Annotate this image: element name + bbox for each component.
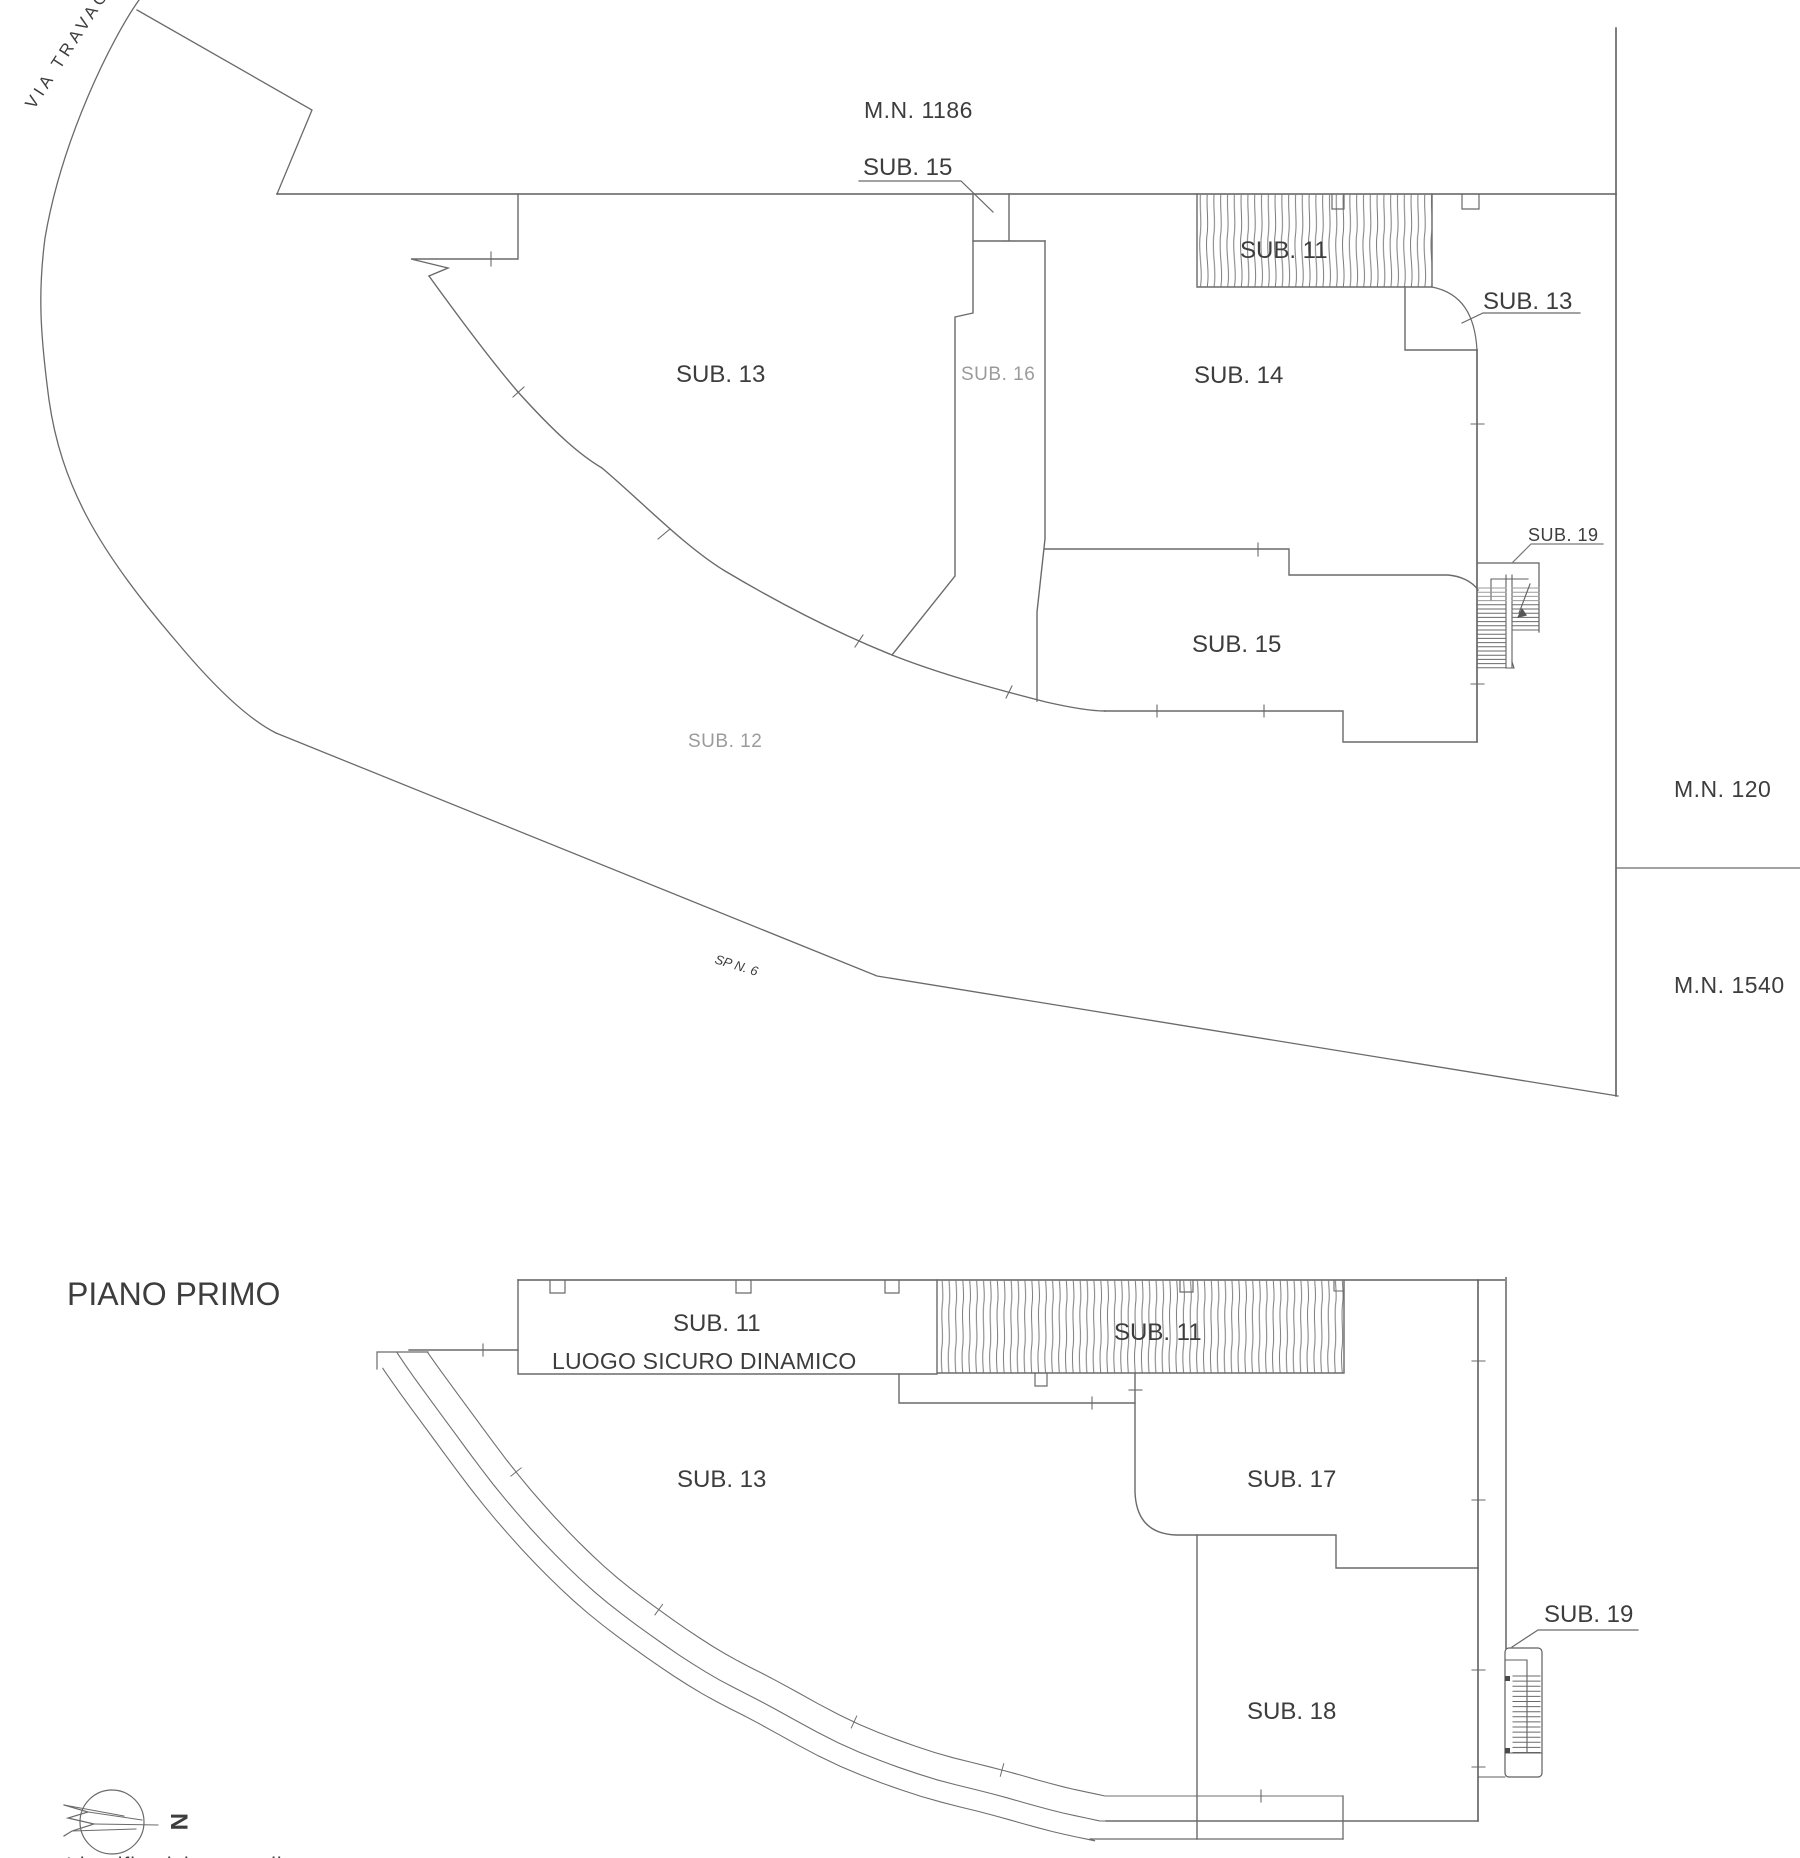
svg-text:SUB. 12: SUB. 12	[688, 731, 762, 752]
svg-text:SP N. 6: SP N. 6	[713, 952, 760, 980]
svg-text:M.N. 1186: M.N. 1186	[864, 97, 973, 123]
svg-text:Identificativi catastali: Identificativi catastali	[66, 1854, 283, 1858]
svg-text:SUB. 11: SUB. 11	[1114, 1319, 1202, 1346]
svg-text:SUB. 15: SUB. 15	[863, 154, 952, 181]
svg-text:M.N. 120: M.N. 120	[1674, 776, 1771, 802]
svg-text:N: N	[165, 1813, 192, 1830]
svg-text:LUOGO SICURO DINAMICO: LUOGO SICURO DINAMICO	[552, 1348, 857, 1374]
svg-text:SUB. 14: SUB. 14	[1194, 362, 1283, 389]
svg-text:SUB. 15: SUB. 15	[1192, 631, 1281, 658]
svg-text:SUB. 13: SUB. 13	[1483, 288, 1572, 315]
svg-text:SUB. 11: SUB. 11	[1240, 237, 1328, 264]
svg-text:SUB. 19: SUB. 19	[1528, 525, 1599, 545]
svg-text:M.N. 1540: M.N. 1540	[1674, 972, 1785, 998]
svg-text:PIANO PRIMO: PIANO PRIMO	[67, 1276, 280, 1312]
svg-text:SUB. 19: SUB. 19	[1544, 1601, 1633, 1628]
svg-text:SUB. 13: SUB. 13	[677, 1466, 766, 1493]
svg-text:SUB. 13: SUB. 13	[676, 361, 765, 388]
svg-text:VIA TRAVAGLIATO: VIA TRAVAGLIATO	[21, 0, 151, 112]
svg-text:SUB. 18: SUB. 18	[1247, 1698, 1336, 1725]
svg-text:SUB. 11: SUB. 11	[673, 1310, 761, 1337]
svg-text:SUB. 17: SUB. 17	[1247, 1466, 1336, 1493]
svg-text:SUB. 16: SUB. 16	[961, 364, 1035, 385]
